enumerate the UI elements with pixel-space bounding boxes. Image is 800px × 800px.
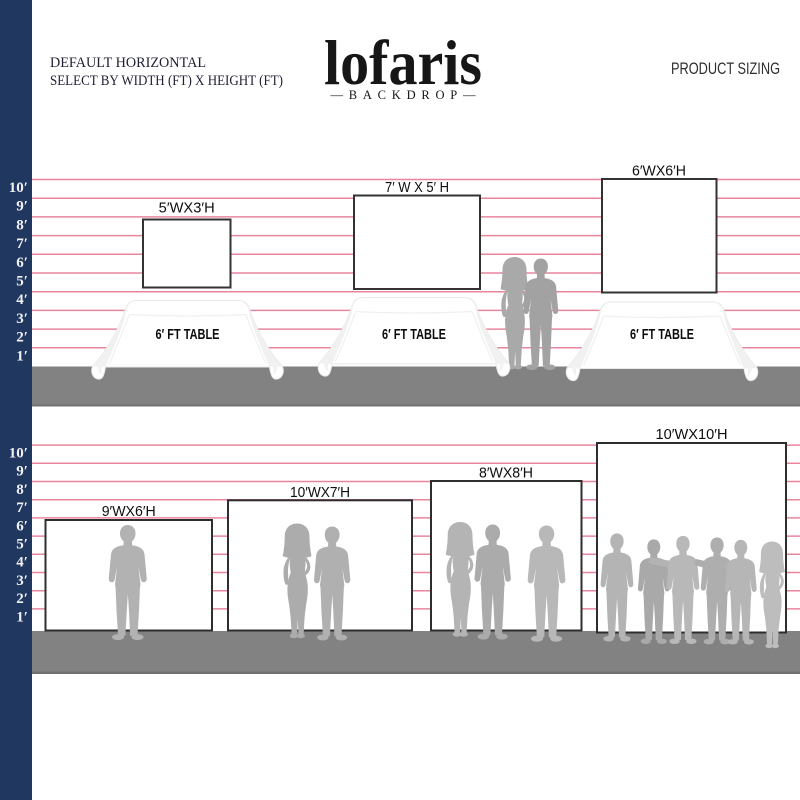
svg-text:6′ FT TABLE: 6′ FT TABLE <box>156 327 220 343</box>
svg-text:1′: 1′ <box>16 609 28 625</box>
svg-text:7′: 7′ <box>16 236 28 252</box>
svg-text:PRODUCT SIZING: PRODUCT SIZING <box>671 60 780 78</box>
svg-text:6′ FT TABLE: 6′ FT TABLE <box>630 327 694 343</box>
svg-text:SELECT BY WIDTH (FT) X HEIGHT: SELECT BY WIDTH (FT) X HEIGHT (FT) <box>50 73 283 89</box>
svg-text:10′: 10′ <box>9 446 28 462</box>
svg-text:6′WX6′H: 6′WX6′H <box>632 164 686 180</box>
svg-text:5′: 5′ <box>16 274 28 290</box>
svg-text:3′: 3′ <box>16 573 28 589</box>
svg-text:10′WX10′H: 10′WX10′H <box>656 427 728 443</box>
svg-text:2′: 2′ <box>16 591 28 607</box>
svg-text:6′: 6′ <box>16 255 28 271</box>
svg-text:lofaris: lofaris <box>324 28 482 98</box>
svg-text:9′WX6′H: 9′WX6′H <box>102 504 156 520</box>
svg-text:5′: 5′ <box>16 537 28 553</box>
svg-text:3′: 3′ <box>16 311 28 327</box>
svg-text:DEFAULT HORIZONTAL: DEFAULT HORIZONTAL <box>50 55 206 71</box>
svg-text:2′: 2′ <box>16 330 28 346</box>
svg-text:4′: 4′ <box>16 292 28 308</box>
svg-text:9′: 9′ <box>16 199 28 215</box>
svg-text:10′: 10′ <box>9 180 28 196</box>
svg-text:1′: 1′ <box>16 348 28 364</box>
svg-text:4′: 4′ <box>16 555 28 571</box>
svg-text:7′ W X 5′ H: 7′ W X 5′ H <box>385 180 449 196</box>
svg-text:8′: 8′ <box>16 217 28 233</box>
svg-text:6′ FT TABLE: 6′ FT TABLE <box>382 327 446 343</box>
svg-text:8′WX8′H: 8′WX8′H <box>479 466 533 482</box>
svg-text:7′: 7′ <box>16 500 28 516</box>
svg-text:8′: 8′ <box>16 482 28 498</box>
svg-text:5′WX3′H: 5′WX3′H <box>159 201 215 217</box>
svg-text:6′: 6′ <box>16 518 28 534</box>
svg-text:10′WX7′H: 10′WX7′H <box>290 485 350 501</box>
svg-text:9′: 9′ <box>16 464 28 480</box>
